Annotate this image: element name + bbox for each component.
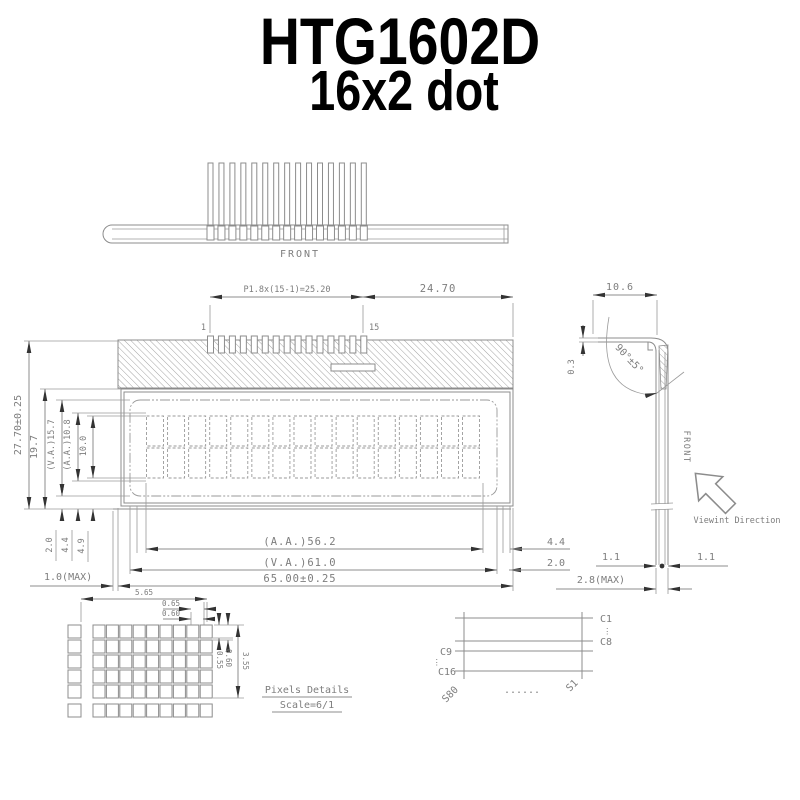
dot	[200, 655, 212, 668]
dot	[147, 640, 159, 653]
top-dimensions: P1.8x(15-1)=25.20 24.70 1 15	[201, 283, 513, 337]
dot	[106, 685, 118, 698]
dot	[173, 625, 185, 638]
dim-char-width: 5.65	[135, 588, 153, 597]
front-pin	[273, 336, 279, 353]
comb-pins	[207, 163, 367, 240]
dot	[147, 704, 159, 717]
dot	[147, 670, 159, 683]
label-com-last: C16	[438, 667, 456, 678]
dot	[173, 704, 185, 717]
dot	[160, 685, 172, 698]
dot	[106, 704, 118, 717]
comb-pin	[296, 163, 301, 225]
dim-right-offset-aa: 4.4	[547, 537, 565, 548]
comb-pin	[274, 163, 279, 225]
comb-pin	[263, 163, 268, 225]
comb-pin	[318, 163, 323, 225]
comb-pin	[208, 163, 213, 225]
dim-va-width: (V.A.)61.0	[263, 557, 336, 569]
dot	[68, 685, 81, 698]
dot	[200, 685, 212, 698]
dot	[173, 655, 185, 668]
front-pin	[240, 336, 246, 353]
dim-right-offset-va: 2.0	[547, 558, 565, 569]
comb-pin-slot	[327, 226, 334, 240]
dot	[133, 625, 145, 638]
dim-va-height: (V.A.)15.7	[47, 419, 57, 470]
dot	[160, 670, 172, 683]
comb-pin-slot	[360, 226, 367, 240]
dim-aa-width: (A.A.)56.2	[263, 536, 336, 548]
dot	[173, 670, 185, 683]
front-pin	[339, 336, 345, 353]
front-pin	[218, 336, 224, 353]
dot	[120, 640, 132, 653]
dim-offset-char: 4.9	[77, 538, 87, 553]
dot	[187, 625, 199, 638]
dim-pin-right: 1.1	[697, 552, 715, 563]
dot	[187, 655, 199, 668]
label-com-first: C1	[600, 614, 612, 625]
dot	[160, 655, 172, 668]
front-pin	[361, 336, 367, 353]
comb-pin-slot	[218, 226, 225, 240]
dot	[133, 655, 145, 668]
dim-pin-left: 1.1	[602, 552, 620, 563]
comb-pin	[350, 163, 355, 225]
comb-pin	[328, 163, 333, 225]
pixel-details: 5.65 0.65 0.60 0.55 0.60 3.55 Pixels Det…	[68, 588, 352, 717]
front-pin	[284, 336, 290, 353]
pin-center-dot	[660, 564, 665, 569]
top-pin-view: FRONT	[103, 163, 508, 260]
bent-pin-hatch	[659, 345, 668, 389]
dot	[120, 625, 132, 638]
comb-pin	[252, 163, 257, 225]
comb-pin-slot	[284, 226, 291, 240]
dim-dot-pitch-x: 0.65	[162, 599, 180, 608]
dot	[93, 704, 105, 717]
dot	[68, 670, 81, 683]
pin-number-first: 1	[201, 323, 206, 333]
bezel-outer	[121, 389, 513, 506]
comb-pin-slot	[349, 226, 356, 240]
dim-pin-pitch: P1.8x(15-1)=25.20	[244, 285, 331, 295]
dot	[187, 640, 199, 653]
comb-pin	[307, 163, 312, 225]
dim-char-height-detail: 3.55	[241, 652, 250, 670]
label-com-mid-end: C8	[600, 637, 612, 648]
dim-overall-width: 65.00±0.25	[263, 573, 336, 585]
top-view-front-label: FRONT	[280, 249, 320, 260]
dot	[147, 655, 159, 668]
comb-pin	[285, 163, 290, 225]
comb-pin-slot	[306, 226, 313, 240]
front-pin	[262, 336, 268, 353]
dim-char-height: 10.0	[79, 436, 89, 456]
dim-side-lip: 0.3	[567, 359, 577, 374]
comb-pin-slot	[273, 226, 280, 240]
comb-pin	[361, 163, 366, 225]
comb-pin-slot	[229, 226, 236, 240]
dim-thickness-max: 2.8(MAX)	[577, 575, 625, 586]
dot	[93, 625, 105, 638]
dot	[147, 685, 159, 698]
comb-pin	[219, 163, 224, 225]
dot	[187, 704, 199, 717]
dot	[187, 685, 199, 698]
dot	[120, 670, 132, 683]
dot	[133, 704, 145, 717]
label-seg-first: S1	[564, 678, 580, 694]
comb-pin	[230, 163, 235, 225]
dim-overall-height: 27.70±0.25	[13, 395, 24, 455]
dot	[173, 685, 185, 698]
dim-dot-pitch-y: 0.60	[224, 649, 233, 668]
dot	[106, 640, 118, 653]
dot	[133, 685, 145, 698]
front-pin	[317, 336, 323, 353]
dot	[106, 655, 118, 668]
dot	[68, 704, 81, 717]
comb-pin-slot	[251, 226, 258, 240]
dim-bezel-height: 19.7	[29, 435, 40, 459]
dot	[93, 640, 105, 653]
dot	[160, 625, 172, 638]
dim-side-width: 10.6	[606, 282, 634, 293]
dot	[160, 640, 172, 653]
comb-pin-slot	[317, 226, 324, 240]
dot	[133, 640, 145, 653]
dim-aa-height: (A.A.)10.8	[63, 419, 73, 470]
dim-top-right: 24.70	[420, 283, 457, 295]
front-pin	[295, 336, 301, 353]
viewing-direction-label: Viewint Direction	[694, 516, 781, 526]
label-seg-last: S80	[440, 685, 461, 706]
side-view: 10.6 0.3 90°±5° FRONT Viewint Direction …	[556, 282, 781, 594]
front-pin	[328, 336, 334, 353]
front-pin	[306, 336, 312, 353]
com-ellipsis-right: ⋮	[603, 627, 612, 637]
dot	[160, 704, 172, 717]
dot	[68, 625, 81, 638]
dot	[133, 670, 145, 683]
dot	[120, 685, 132, 698]
dim-glass-max: 1.0(MAX)	[44, 572, 92, 583]
dot	[200, 640, 212, 653]
front-pin	[229, 336, 235, 353]
dot	[93, 670, 105, 683]
comb-pin-slot	[338, 226, 345, 240]
pixel-details-caption: Pixels Details	[265, 685, 349, 696]
dim-dot-height: 0.55	[215, 651, 224, 669]
dim-offset-aa: 4.4	[61, 537, 71, 552]
dot	[93, 685, 105, 698]
front-pin	[350, 336, 356, 353]
label-com-mid-start: C9	[440, 647, 452, 658]
dot	[68, 640, 81, 653]
title-block: HTG1602D 16x2 dot	[260, 4, 540, 123]
pixel-details-scale: Scale=6/1	[280, 700, 334, 711]
pcb-slot	[331, 364, 375, 371]
dot-matrix-grid	[68, 625, 212, 717]
dot	[68, 655, 81, 668]
dot	[147, 625, 159, 638]
comb-pin	[241, 163, 246, 225]
seg-ellipsis: ......	[504, 685, 540, 696]
front-pin	[251, 336, 257, 353]
drawing-canvas: HTG1602D 16x2 dot FRONT P1.8x(15-1)=25.2…	[0, 0, 800, 800]
page-subtitle: 16x2 dot	[309, 60, 499, 123]
dot	[200, 625, 212, 638]
lcd-datasheet-drawing: HTG1602D 16x2 dot FRONT P1.8x(15-1)=25.2…	[0, 0, 800, 800]
dot	[106, 625, 118, 638]
dot	[106, 670, 118, 683]
dot	[120, 655, 132, 668]
dot	[93, 655, 105, 668]
dot	[173, 640, 185, 653]
comb-pin-slot	[262, 226, 269, 240]
dot	[200, 670, 212, 683]
comb-pin-slot	[207, 226, 214, 240]
com-seg-diagram: C1 ⋮ C8 C9 ⋮ C16 S80 S1 ......	[433, 612, 613, 705]
front-pins	[208, 336, 367, 353]
dim-bend-angle: 90°±5°	[612, 342, 645, 376]
comb-pin	[339, 163, 344, 225]
dot	[120, 704, 132, 717]
dot	[200, 704, 212, 717]
dim-offset-va: 2.0	[45, 537, 55, 552]
comb-pin-slot	[295, 226, 302, 240]
front-pin	[208, 336, 214, 353]
viewing-direction-arrow-icon	[683, 461, 742, 520]
pcb-hatched-area	[118, 340, 513, 388]
side-view-front-label: FRONT	[681, 430, 691, 463]
dot	[187, 670, 199, 683]
comb-pin-slot	[240, 226, 247, 240]
pin-number-last: 15	[369, 323, 379, 333]
dim-dot-width: 0.60	[162, 609, 181, 618]
